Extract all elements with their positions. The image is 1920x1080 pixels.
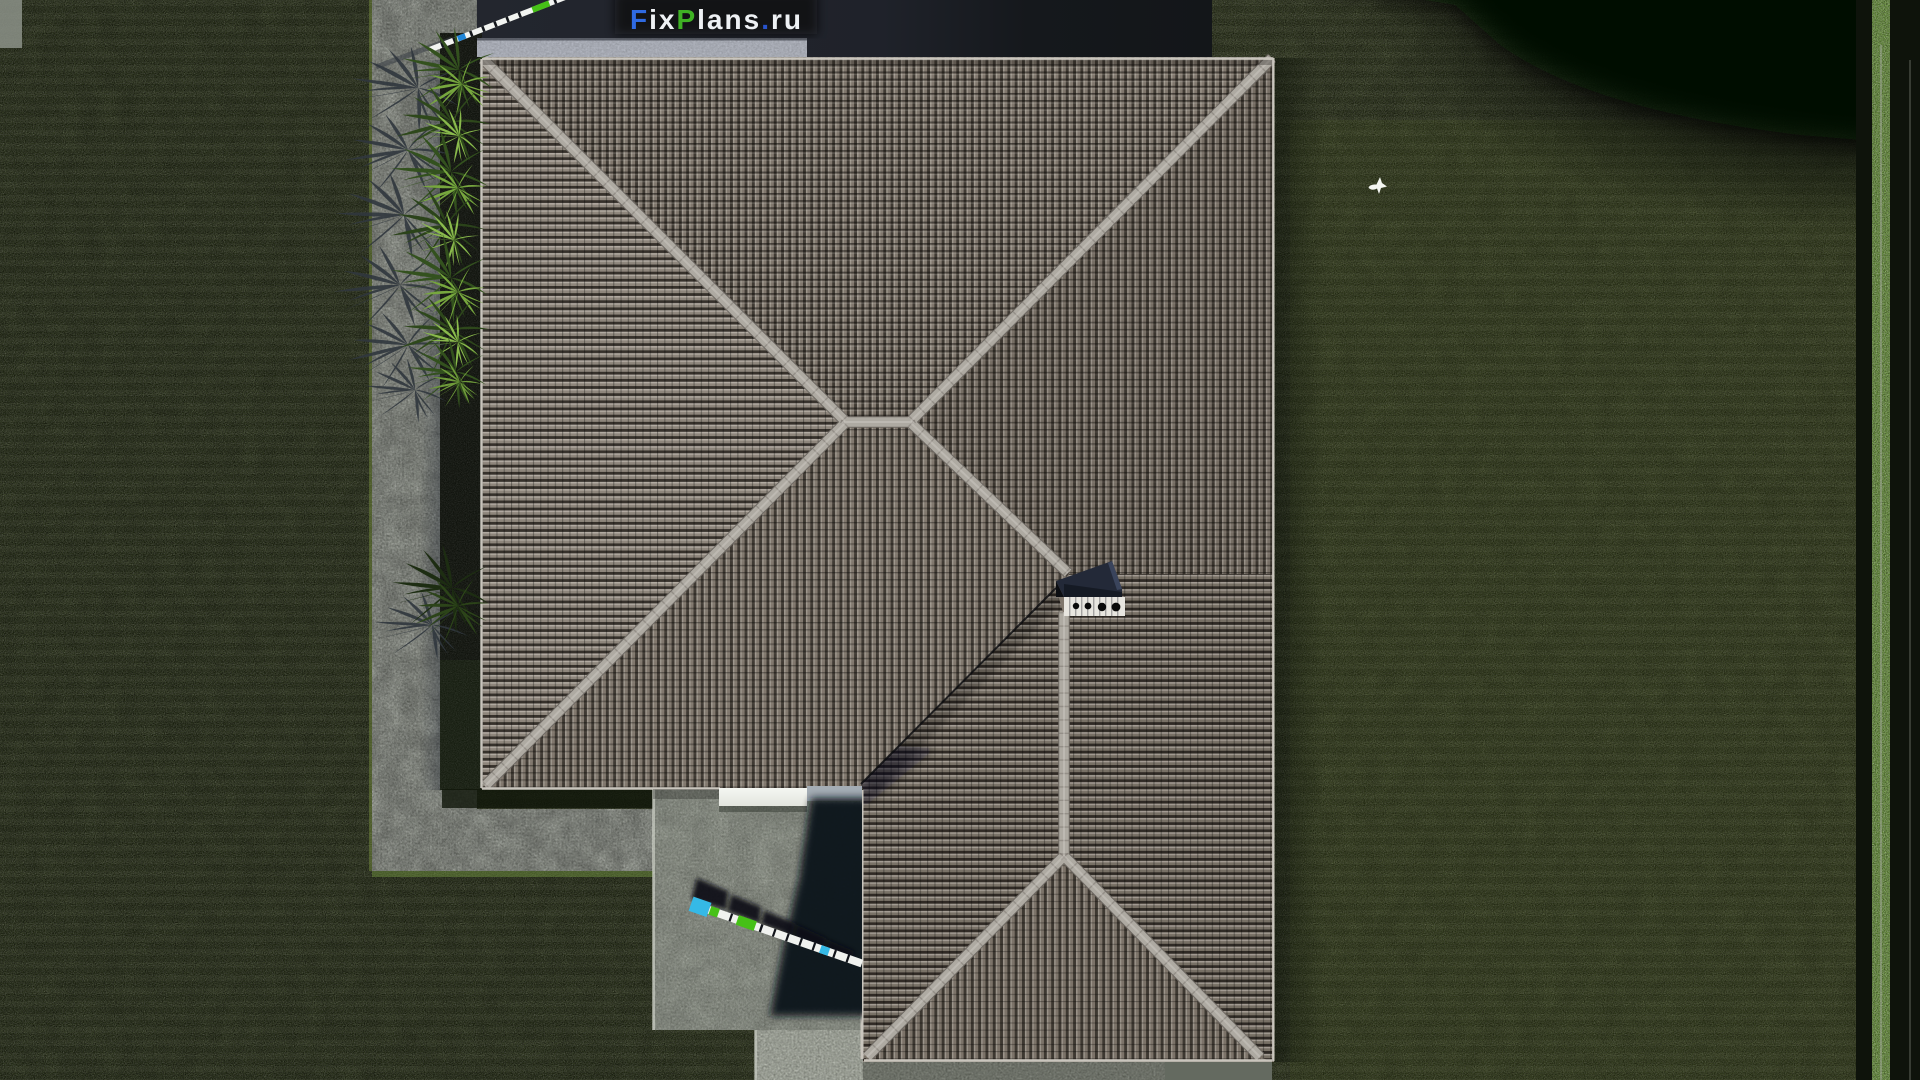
svg-text:FixPlans.ru: FixPlans.ru [630, 4, 803, 35]
